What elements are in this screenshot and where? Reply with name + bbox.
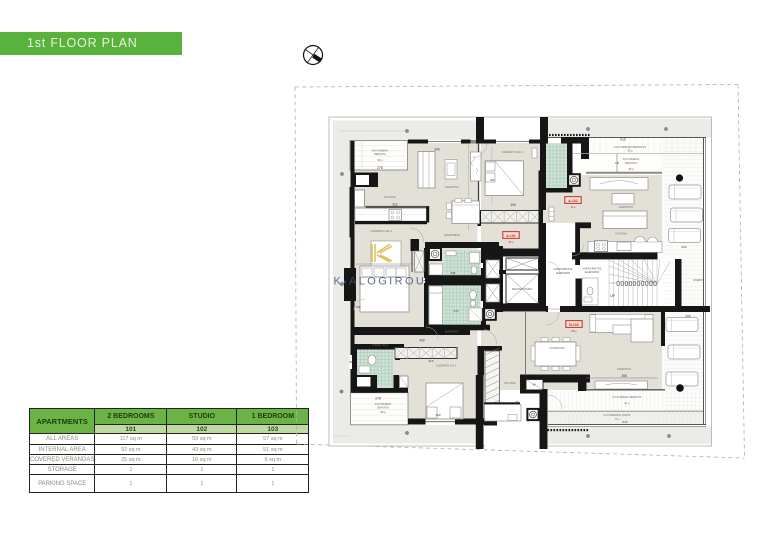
- svg-text:ΚΑΛΥΜΜΕΝΗ: ΚΑΛΥΜΜΕΝΗ: [375, 402, 392, 406]
- svg-text:278: 278: [375, 397, 381, 401]
- svg-text:96 μ: 96 μ: [628, 149, 633, 152]
- svg-text:409: 409: [419, 339, 425, 343]
- svg-text:96 μ: 96 μ: [380, 410, 386, 414]
- svg-text:ΚΟΥΖΙΝΑ: ΚΟΥΖΙΝΑ: [615, 232, 627, 236]
- svg-text:ΔΙΑΔΡΟΜΟΣ: ΔΙΑΔΡΟΜΟΣ: [444, 233, 460, 237]
- svg-text:49 μ: 49 μ: [570, 205, 576, 209]
- svg-text:ΚΑΘΙΣΤΙΚΟ: ΚΑΘΙΣΤΙΚΟ: [445, 185, 459, 189]
- svg-text:ΚΑΘΙΣΤΙΚΟ: ΚΑΘΙΣΤΙΚΟ: [617, 367, 631, 371]
- svg-text:312: 312: [392, 203, 398, 207]
- svg-text:89 μ: 89 μ: [508, 240, 514, 244]
- svg-text:ΚΑΘΙΣΤΙΚΟ: ΚΑΘΙΣΤΙΚΟ: [619, 205, 633, 209]
- svg-text:ΚΑΛΥΜΜΕΝΗ: ΚΑΛΥΜΜΕΝΗ: [623, 157, 640, 161]
- svg-text:160: 160: [435, 413, 440, 417]
- svg-text:220: 220: [681, 245, 686, 249]
- svg-text:71 μ: 71 μ: [615, 418, 620, 421]
- svg-text:316: 316: [428, 359, 433, 363]
- svg-text:ΔΙΑΔΡΟΜΟΣ: ΔΙΑΔΡΟΜΟΣ: [556, 272, 571, 275]
- svg-text:Υ/ΔΩΜΑΤΙΟ 101-1: Υ/ΔΩΜΑΤΙΟ 101-1: [370, 229, 393, 233]
- svg-text:300: 300: [356, 305, 361, 309]
- svg-text:ΚΑΛΥΜΜΕΝΟΣ ΧΩΡΟΣ: ΚΑΛΥΜΜΕΝΟΣ ΧΩΡΟΣ: [603, 414, 630, 417]
- svg-text:94: 94: [532, 383, 536, 387]
- svg-text:306: 306: [510, 203, 516, 207]
- svg-text:340: 340: [434, 148, 440, 152]
- svg-text:88 μ: 88 μ: [571, 329, 577, 333]
- svg-text:100: 100: [615, 162, 620, 165]
- svg-text:298: 298: [451, 271, 456, 275]
- svg-text:ΚΑΛΥΜΜΕΝΗ: ΚΑΛΥΜΜΕΝΗ: [372, 149, 389, 153]
- svg-text:96 μ: 96 μ: [377, 158, 383, 162]
- svg-text:ΚΟΥΖΙΝΑ: ΚΟΥΖΙΝΑ: [504, 381, 515, 385]
- svg-text:ΔΙΑΔΡΟΜΟΣ: ΔΙΑΔΡΟΜΟΣ: [585, 271, 600, 274]
- svg-text:UP: UP: [610, 294, 614, 298]
- svg-text:ΚΟΥΖΙΝΑ: ΚΟΥΖΙΝΑ: [384, 195, 396, 199]
- svg-text:278: 278: [377, 166, 383, 170]
- svg-text:A-102: A-102: [568, 199, 578, 203]
- svg-text:ΚΑΛΥΜΜΕΝΗ ΒΕΡΑΝΤΑ: ΚΑΛΥΜΜΕΝΗ ΒΕΡΑΝΤΑ: [613, 395, 642, 399]
- svg-text:ΥΠΝΟΔ. 101-2: ΥΠΝΟΔ. 101-2: [372, 344, 389, 347]
- svg-text:358: 358: [621, 374, 627, 378]
- svg-text:A-101: A-101: [506, 234, 516, 238]
- svg-text:ΤΡΑΠΕΖΑΡΙΑ: ΤΡΑΠΕΖΑΡΙΑ: [549, 346, 565, 350]
- svg-text:Υ/ΔΩΜΑΤΙΟ 101-2: Υ/ΔΩΜΑΤΙΟ 101-2: [436, 365, 457, 368]
- svg-text:ΔΙΑΔΡΟΜΟΣ: ΔΙΑΔΡΟΜΟΣ: [445, 331, 460, 334]
- svg-text:26: 26: [515, 400, 519, 404]
- svg-text:ΜΗΧΑΝΟΣΤΑΣΙΟ: ΜΗΧΑΝΟΣΤΑΣΙΟ: [512, 287, 532, 291]
- svg-text:91 μ: 91 μ: [625, 402, 630, 405]
- svg-text:98 μ: 98 μ: [628, 167, 634, 171]
- svg-text:ΒΕΡΑΝΤΑ: ΒΕΡΑΝΤΑ: [377, 406, 389, 410]
- svg-text:616: 616: [620, 138, 626, 142]
- svg-text:Υ/ΔΩΜΑΤΙΟ 102-1: Υ/ΔΩΜΑΤΙΟ 102-1: [501, 150, 524, 154]
- svg-text:270: 270: [454, 309, 459, 313]
- svg-text:ΚΟΙΝΟΧΡΗΣΤΟΣ: ΚΟΙΝΟΧΡΗΣΤΟΣ: [554, 268, 573, 271]
- svg-text:616: 616: [622, 420, 627, 424]
- svg-text:250: 250: [490, 178, 495, 182]
- svg-text:B-103: B-103: [569, 323, 579, 327]
- svg-text:ΒΕΡΑΝΤΑ: ΒΕΡΑΝΤΑ: [374, 152, 386, 156]
- svg-text:206: 206: [685, 314, 690, 318]
- svg-text:ΚΛΙΜΑΚΟ: ΚΛΙΜΑΚΟ: [693, 279, 704, 282]
- svg-text:ΒΕΡΑΝΤΑ: ΒΕΡΑΝΤΑ: [625, 161, 637, 165]
